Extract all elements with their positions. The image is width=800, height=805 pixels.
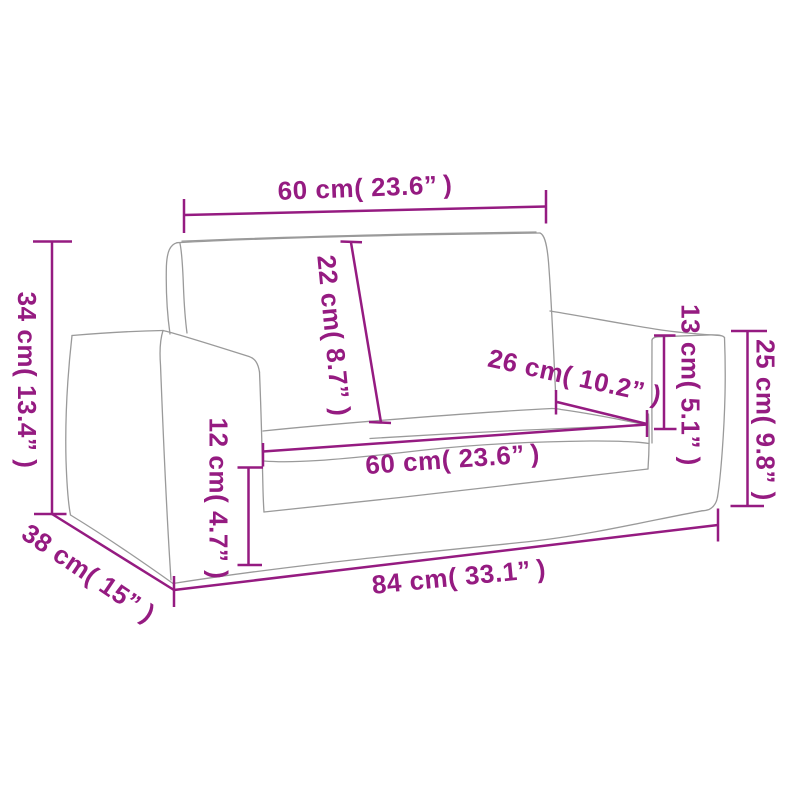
- svg-text:12 cm( 4.7” ): 12 cm( 4.7” ): [203, 418, 233, 580]
- svg-text:13 cm( 5.1” ): 13 cm( 5.1” ): [676, 304, 706, 466]
- svg-text:60 cm( 23.6” ): 60 cm( 23.6” ): [277, 169, 453, 206]
- svg-text:60 cm( 23.6” ): 60 cm( 23.6” ): [364, 438, 540, 480]
- svg-text:22 cm( 8.7” ): 22 cm( 8.7” ): [311, 254, 356, 418]
- svg-text:84 cm( 33.1” ): 84 cm( 33.1” ): [370, 553, 547, 600]
- svg-text:26 cm( 10.2” ): 26 cm( 10.2” ): [485, 343, 664, 411]
- svg-text:38 cm( 15” ): 38 cm( 15” ): [16, 517, 160, 628]
- svg-text:25 cm( 9.8” ): 25 cm( 9.8” ): [751, 339, 781, 501]
- svg-text:34 cm( 13.4” ): 34 cm( 13.4” ): [12, 292, 42, 469]
